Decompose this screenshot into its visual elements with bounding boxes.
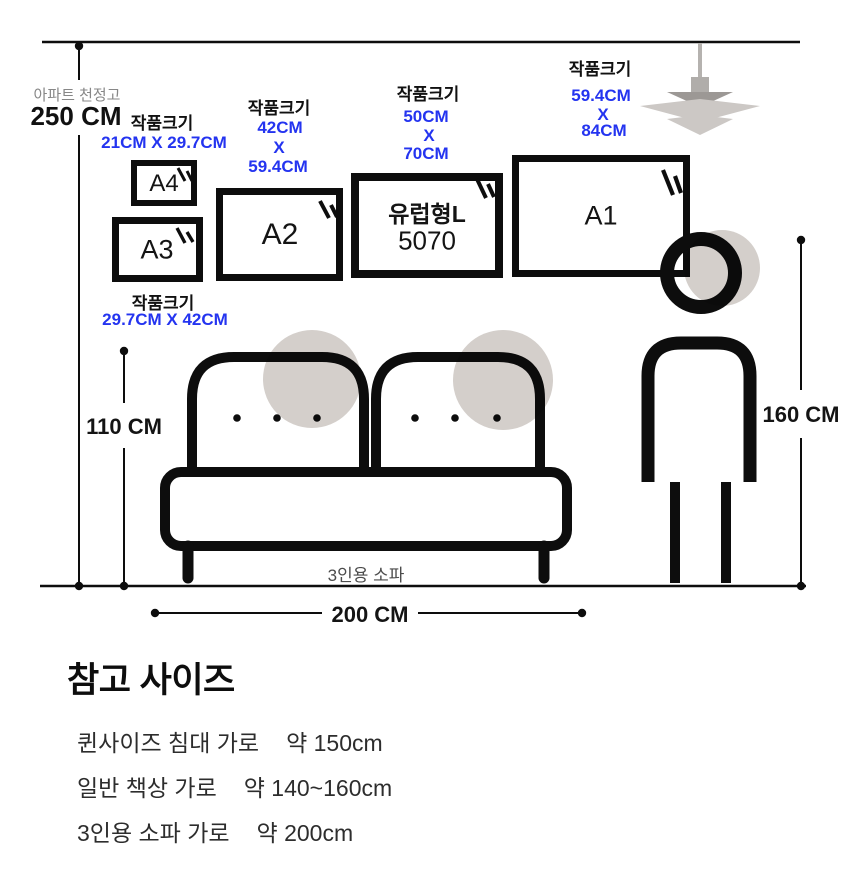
a2-size-value-line2: X <box>273 139 284 157</box>
frame-a1-label: A1 <box>584 201 617 232</box>
reference-item-sofa: 3인용 소파 가로 약 200cm <box>77 814 353 848</box>
a1-size-caption: 작품크기 <box>569 55 632 80</box>
reference-item-desk: 일반 책상 가로 약 140~160cm <box>77 769 392 803</box>
frame-a2-label: A2 <box>262 218 299 252</box>
frame-euro-label: 유럽형L <box>388 195 466 229</box>
a4-size-value: 21CM X 29.7CM <box>101 134 227 152</box>
euro-size-caption: 작품크기 <box>397 80 460 105</box>
reference-item-label: 퀸사이즈 침대 가로 <box>77 724 259 758</box>
frame-a4-label: A4 <box>149 170 178 198</box>
a3-size-value: 29.7CM X 42CM <box>102 311 228 329</box>
sofa-width-value: 200 CM <box>331 602 408 628</box>
a2-size-value-line1: 42CM <box>257 119 302 137</box>
frame-a3-label: A3 <box>140 235 173 266</box>
reference-title: 참고 사이즈 <box>67 652 235 703</box>
reference-item-label: 일반 책상 가로 <box>77 769 217 803</box>
reference-item-value: 약 150cm <box>286 724 383 758</box>
euro-size-value-line1: 50CM <box>403 108 448 126</box>
reference-item-value: 약 140~160cm <box>244 769 392 803</box>
euro-size-value-line3: 70CM <box>403 145 448 163</box>
ceiling-height-value: 250 CM <box>30 101 121 132</box>
euro-size-value-line2: X <box>423 127 434 145</box>
reference-item-bed: 퀸사이즈 침대 가로 약 150cm <box>77 724 383 758</box>
a1-size-value-line3: 84CM <box>581 122 626 140</box>
a4-size-caption: 작품크기 <box>131 109 194 134</box>
a1-size-value-line1: 59.4CM <box>571 87 631 105</box>
frame-euro-sublabel: 5070 <box>398 226 456 257</box>
sofa-height-dimension-line <box>120 347 128 590</box>
reference-item-value: 약 200cm <box>257 814 354 848</box>
pendant-lamp-icon <box>640 43 760 135</box>
size-guide-infographic: 아파트 천정고 250 CM 작품크기 21CM X 29.7CM 작품크기 2… <box>0 0 860 872</box>
person-height-value: 160 CM <box>762 402 839 428</box>
a2-size-value-line3: 59.4CM <box>248 158 308 176</box>
sofa-caption: 3인용 소파 <box>328 561 405 586</box>
reference-item-label: 3인용 소파 가로 <box>77 814 230 848</box>
a2-size-caption: 작품크기 <box>248 94 311 119</box>
sofa-height-value: 110 CM <box>86 414 162 440</box>
